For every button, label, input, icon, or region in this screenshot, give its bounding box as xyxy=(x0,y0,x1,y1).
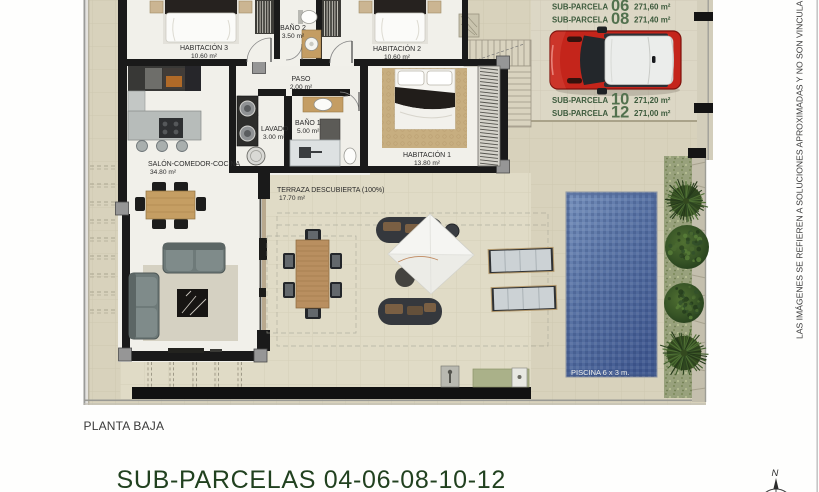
svg-text:PISCINA 6 x 3 m.: PISCINA 6 x 3 m. xyxy=(571,368,629,377)
svg-text:10.60 m²: 10.60 m² xyxy=(191,53,218,60)
svg-text:HABITACIÓN 2: HABITACIÓN 2 xyxy=(373,44,421,53)
svg-text:HABITACIÓN 1: HABITACIÓN 1 xyxy=(403,150,451,159)
svg-text:271,00 m²: 271,00 m² xyxy=(634,109,671,118)
svg-text:271,60 m²: 271,60 m² xyxy=(634,3,671,12)
svg-text:271,40 m²: 271,40 m² xyxy=(634,16,671,25)
svg-text:BAÑO 1: BAÑO 1 xyxy=(295,118,321,127)
svg-text:SUB-PARCELA: SUB-PARCELA xyxy=(552,16,609,25)
svg-text:5.00 m²: 5.00 m² xyxy=(297,128,320,135)
svg-text:10.60 m²: 10.60 m² xyxy=(384,54,411,61)
svg-text:PLANTA BAJA: PLANTA BAJA xyxy=(84,419,165,433)
svg-text:SALÓN-COMEDOR-COCINA: SALÓN-COMEDOR-COCINA xyxy=(148,159,241,168)
svg-text:TERRAZA DESCUBIERTA (100%): TERRAZA DESCUBIERTA (100%) xyxy=(277,187,385,194)
svg-text:BAÑO 2: BAÑO 2 xyxy=(280,23,306,32)
svg-text:3.00 m²: 3.00 m² xyxy=(263,134,286,141)
svg-text:271,20 m²: 271,20 m² xyxy=(634,96,671,105)
svg-text:SUB-PARCELA: SUB-PARCELA xyxy=(552,96,609,105)
svg-text:HABITACIÓN 3: HABITACIÓN 3 xyxy=(180,43,228,52)
svg-text:N: N xyxy=(772,468,779,479)
svg-text:LAS IMÁGENES SE REFIEREN A SOL: LAS IMÁGENES SE REFIEREN A SOLUCIONES AP… xyxy=(795,0,805,339)
svg-text:34.80 m²: 34.80 m² xyxy=(150,169,177,176)
svg-text:08: 08 xyxy=(611,10,629,28)
svg-text:2.00 m²: 2.00 m² xyxy=(290,84,313,91)
svg-text:LAVADO: LAVADO xyxy=(261,126,289,133)
svg-text:3.50 m²: 3.50 m² xyxy=(282,33,305,40)
svg-text:13.80 m²: 13.80 m² xyxy=(414,160,441,167)
svg-text:17.70 m²: 17.70 m² xyxy=(279,195,306,202)
svg-text:SUB-PARCELA: SUB-PARCELA xyxy=(552,109,609,118)
svg-text:SUB-PARCELA: SUB-PARCELA xyxy=(552,3,609,12)
svg-text:SUB-PARCELAS 04-06-08-10-12: SUB-PARCELAS 04-06-08-10-12 xyxy=(117,466,506,492)
svg-text:PASO: PASO xyxy=(292,76,311,83)
svg-text:12: 12 xyxy=(611,104,629,122)
